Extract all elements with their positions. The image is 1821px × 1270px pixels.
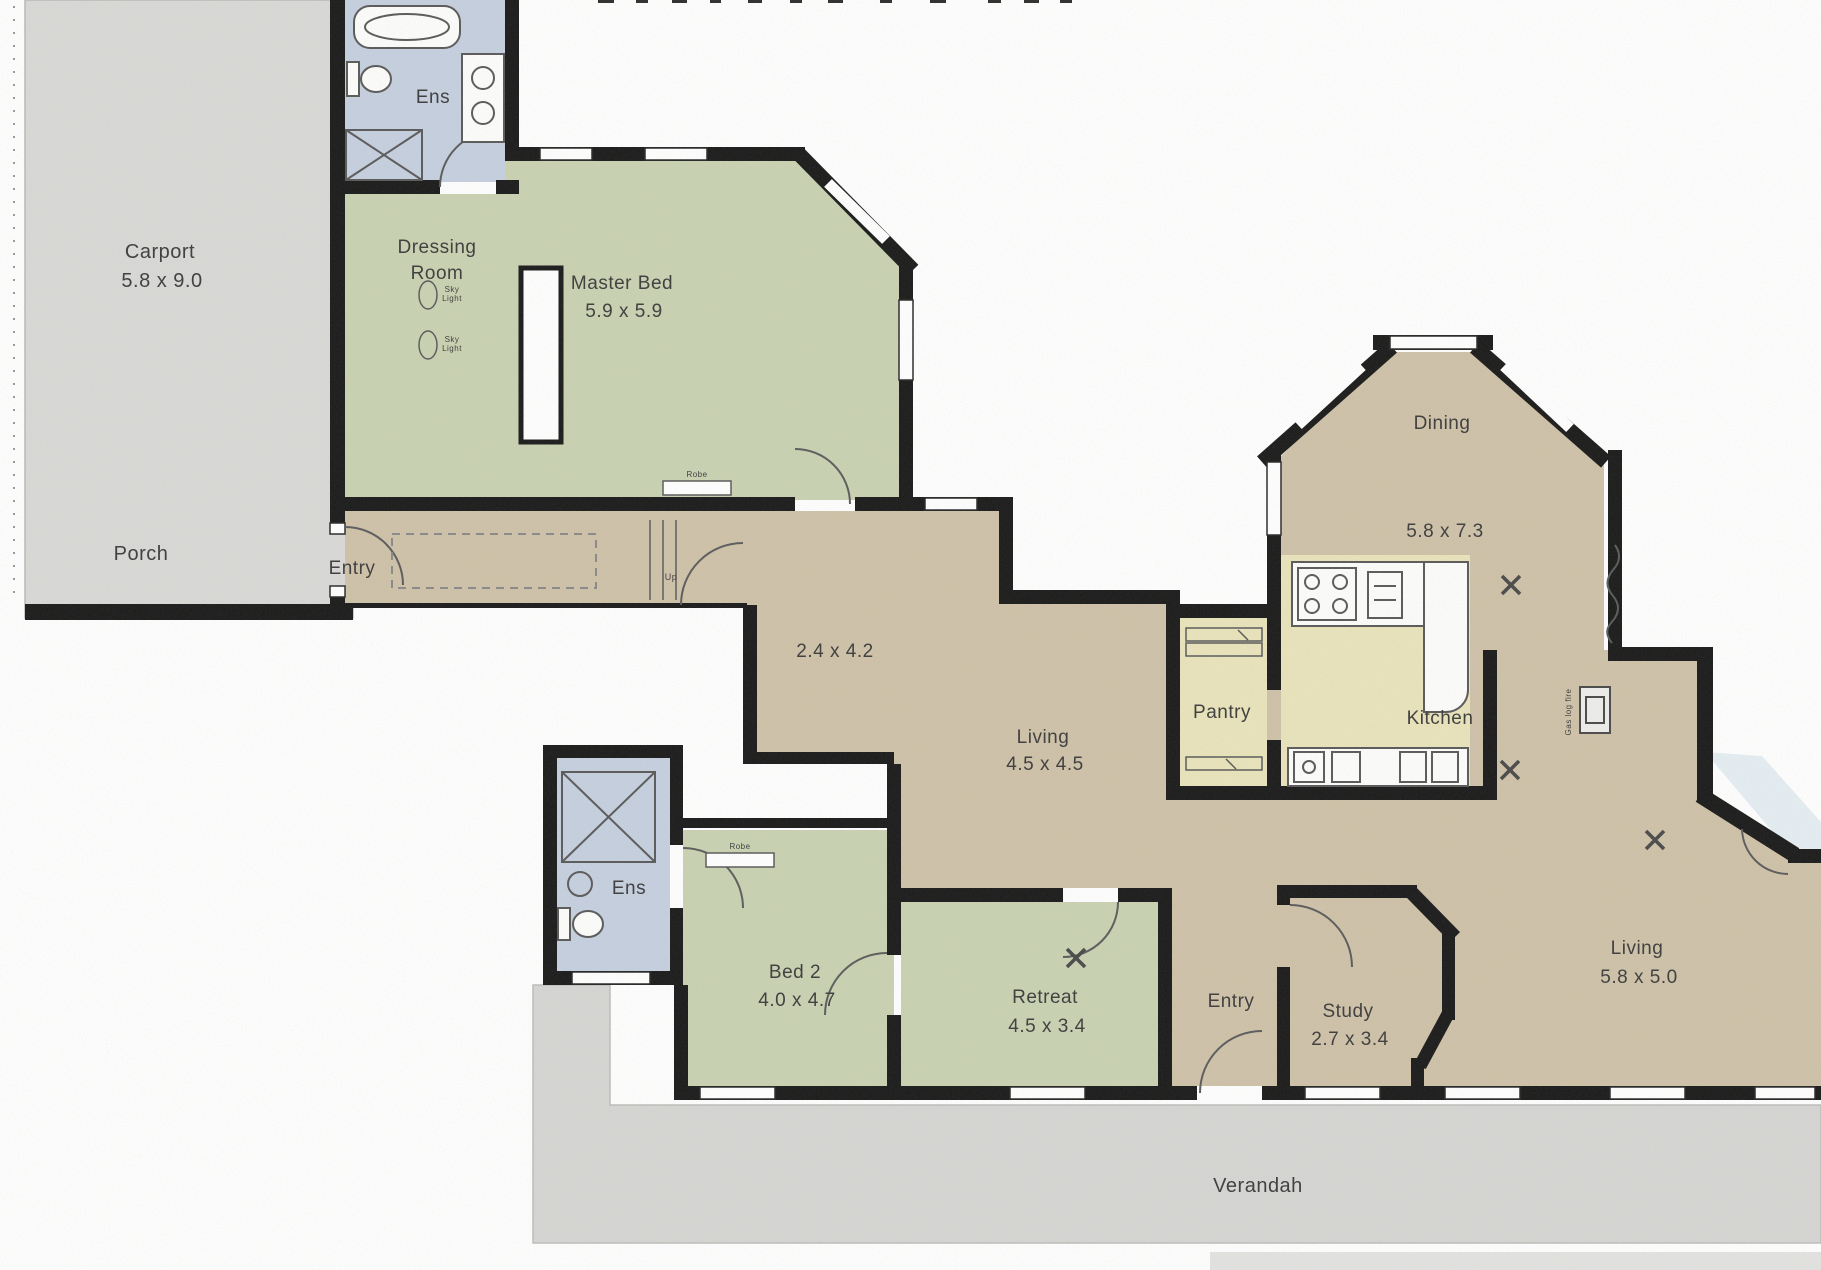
paper-texture	[0, 0, 1821, 1270]
floor-plan-canvas: Carport5.8 x 9.0PorchEnsDressingRoomMast…	[0, 0, 1821, 1270]
floor-plan-page: Carport5.8 x 9.0PorchEnsDressingRoomMast…	[0, 0, 1821, 1270]
